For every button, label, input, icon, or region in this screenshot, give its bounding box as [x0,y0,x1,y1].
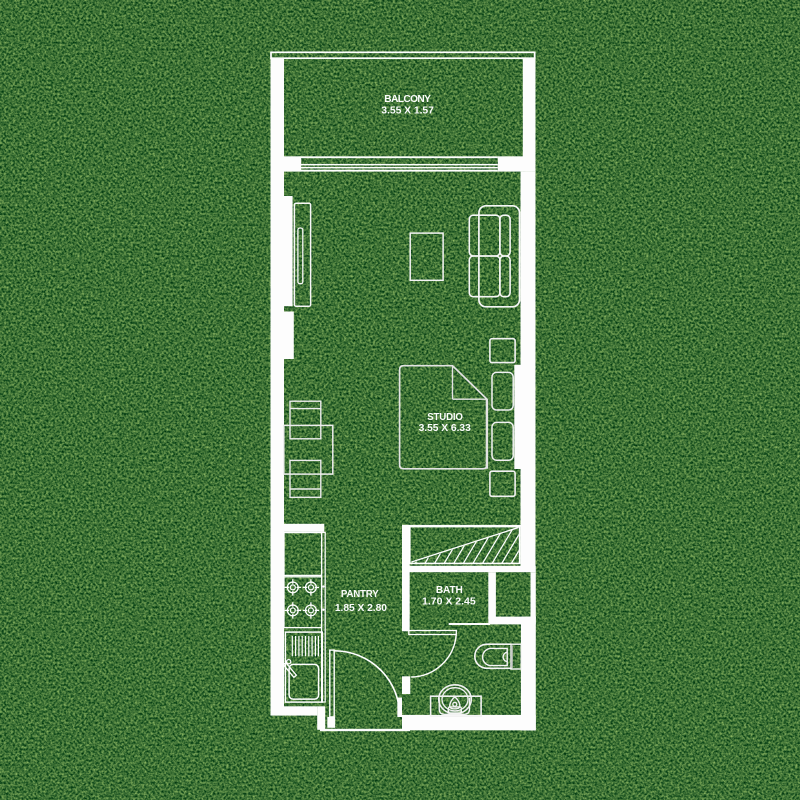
svg-text:STUDIO: STUDIO [427,412,463,423]
svg-text:PANTRY: PANTRY [341,589,379,600]
svg-text:1.85 X 2.80: 1.85 X 2.80 [335,603,387,614]
svg-text:1.70 X 2.45: 1.70 X 2.45 [422,596,476,608]
svg-text:BATH: BATH [436,585,463,596]
svg-text:3.55 X 1.57: 3.55 X 1.57 [381,105,434,116]
svg-text:BALCONY: BALCONY [384,94,431,105]
svg-text:3.55 X 6.33: 3.55 X 6.33 [419,423,471,434]
